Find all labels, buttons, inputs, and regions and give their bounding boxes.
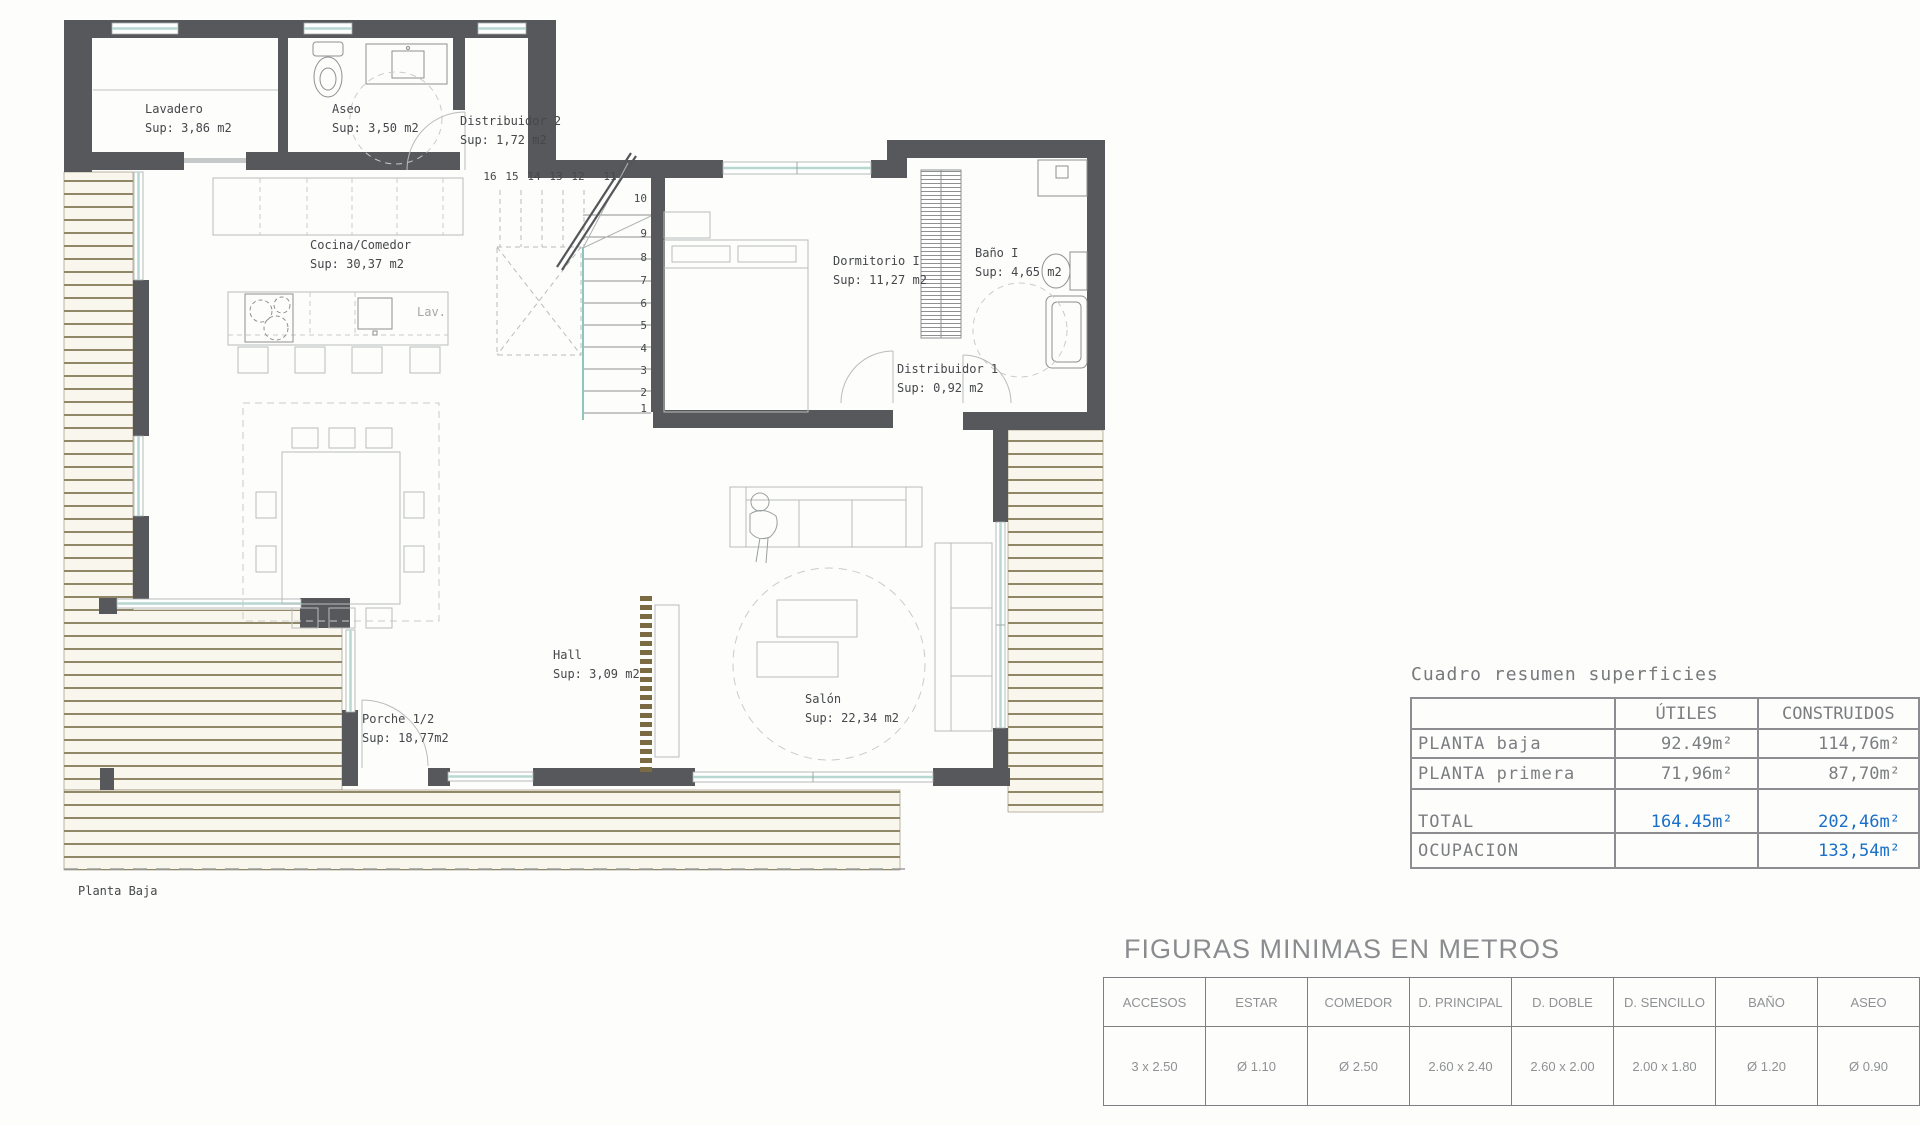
toilet-aseo bbox=[313, 42, 343, 97]
room-name: Porche 1/2 bbox=[362, 710, 449, 729]
stair-number: 9 bbox=[625, 227, 647, 240]
table-row: OCUPACION 133,54m² bbox=[1411, 833, 1919, 868]
vanity-aseo bbox=[366, 44, 447, 84]
summary-value-total: 202,46m² bbox=[1758, 789, 1919, 833]
figuras-value: Ø 0.90 bbox=[1818, 1027, 1920, 1106]
kitchen-island bbox=[228, 292, 448, 373]
summary-value: 92.49m² bbox=[1615, 729, 1758, 758]
wood-slat-strip bbox=[640, 596, 652, 772]
summary-row-label: PLANTA primera bbox=[1411, 758, 1615, 789]
summary-value: 114,76m² bbox=[1758, 729, 1919, 758]
room-label-hall: Hall Sup: 3,09 m2 bbox=[553, 646, 640, 684]
stair-number: 14 bbox=[525, 170, 543, 183]
room-label-distribuidor2: Distribuidor 2 Sup: 1,72 m2 bbox=[460, 112, 561, 150]
bed bbox=[664, 212, 808, 412]
stair-number: 1 bbox=[625, 402, 647, 415]
table-row: TOTAL 164.45m² 202,46m² bbox=[1411, 789, 1919, 833]
room-label-aseo: Aseo Sup: 3,50 m2 bbox=[332, 100, 419, 138]
room-name: Hall bbox=[553, 646, 640, 665]
figuras-col-header: BAÑO bbox=[1716, 978, 1818, 1027]
deck-post bbox=[100, 768, 114, 790]
room-label-lavadero: Lavadero Sup: 3,86 m2 bbox=[145, 100, 232, 138]
turning-circle-salon bbox=[733, 568, 925, 760]
person-figure bbox=[750, 493, 777, 563]
figuras-value: 2.60 x 2.40 bbox=[1410, 1027, 1512, 1106]
table-row: ACCESOS ESTAR COMEDOR D. PRINCIPAL D. DO… bbox=[1104, 978, 1920, 1027]
figuras-col-header: ACCESOS bbox=[1104, 978, 1206, 1027]
summary-table-title: Cuadro resumen superficies bbox=[1411, 664, 1719, 685]
sliding-door bbox=[184, 158, 246, 163]
stair-number: 12 bbox=[569, 170, 587, 183]
stair-number: 7 bbox=[625, 274, 647, 287]
room-name: Dormitorio I bbox=[833, 252, 927, 271]
room-name: Salón bbox=[805, 690, 899, 709]
stair-number: 16 bbox=[481, 170, 499, 183]
summary-col-header: CONSTRUIDOS bbox=[1758, 698, 1919, 729]
figuras-col-header: ESTAR bbox=[1206, 978, 1308, 1027]
stair-number: 4 bbox=[625, 342, 647, 355]
stair-number: 6 bbox=[625, 297, 647, 310]
room-label-cocina: Cocina/Comedor Sup: 30,37 m2 bbox=[310, 236, 411, 274]
room-label-distribuidor1: Distribuidor 1 Sup: 0,92 m2 bbox=[897, 360, 998, 398]
wardrobe bbox=[921, 170, 961, 338]
room-label-dormitorio1: Dormitorio I Sup: 11,27 m2 bbox=[833, 252, 927, 290]
stair-number: 3 bbox=[625, 364, 647, 377]
sink bbox=[358, 298, 392, 335]
room-area: Sup: 1,72 m2 bbox=[460, 131, 561, 150]
room-area: Sup: 3,50 m2 bbox=[332, 119, 419, 138]
figuras-value: 2.00 x 1.80 bbox=[1614, 1027, 1716, 1106]
table-row: PLANTA primera 71,96m² 87,70m² bbox=[1411, 758, 1919, 789]
figuras-col-header: ASEO bbox=[1818, 978, 1920, 1027]
coffee-table-2 bbox=[757, 642, 838, 677]
sink-label: Lav. bbox=[417, 305, 446, 319]
figuras-col-header: D. PRINCIPAL bbox=[1410, 978, 1512, 1027]
room-label-salon: Salón Sup: 22,34 m2 bbox=[805, 690, 899, 728]
summary-value-total: 164.45m² bbox=[1615, 789, 1758, 833]
side-unit bbox=[935, 543, 992, 731]
stair-number: 8 bbox=[625, 251, 647, 264]
room-area: Sup: 4,65 m2 bbox=[975, 263, 1062, 282]
toilet-bath-tank bbox=[1070, 252, 1087, 290]
figuras-value: 3 x 2.50 bbox=[1104, 1027, 1206, 1106]
figuras-value: Ø 1.20 bbox=[1716, 1027, 1818, 1106]
room-area: Sup: 11,27 m2 bbox=[833, 271, 927, 290]
room-name: Distribuidor 1 bbox=[897, 360, 998, 379]
room-area: Sup: 30,37 m2 bbox=[310, 255, 411, 274]
room-name: Lavadero bbox=[145, 100, 232, 119]
summary-table: ÚTILES CONSTRUIDOS PLANTA baja 92.49m² 1… bbox=[1410, 697, 1920, 869]
nightstand bbox=[664, 212, 710, 238]
figuras-col-header: D. SENCILLO bbox=[1614, 978, 1716, 1027]
stair-number: 11 bbox=[601, 170, 619, 183]
room-area: Sup: 3,86 m2 bbox=[145, 119, 232, 138]
room-area: Sup: 22,34 m2 bbox=[805, 709, 899, 728]
stair-number: 5 bbox=[625, 319, 647, 332]
mirror bbox=[1056, 166, 1068, 178]
figuras-col-header: D. DOBLE bbox=[1512, 978, 1614, 1027]
figuras-col-header: COMEDOR bbox=[1308, 978, 1410, 1027]
summary-row-label: OCUPACION bbox=[1411, 833, 1615, 868]
room-name: Cocina/Comedor bbox=[310, 236, 411, 255]
coffee-table-1 bbox=[777, 600, 857, 637]
figuras-value: 2.60 x 2.00 bbox=[1512, 1027, 1614, 1106]
sheet-title: Planta Baja bbox=[78, 884, 157, 898]
summary-value: 87,70m² bbox=[1758, 758, 1919, 789]
summary-row-label: PLANTA baja bbox=[1411, 729, 1615, 758]
figuras-table: ACCESOS ESTAR COMEDOR D. PRINCIPAL D. DO… bbox=[1103, 977, 1920, 1106]
stair-number: 2 bbox=[625, 386, 647, 399]
stair-number: 10 bbox=[625, 192, 647, 205]
figuras-table-title: FIGURAS MINIMAS EN METROS bbox=[1124, 934, 1560, 965]
room-name: Aseo bbox=[332, 100, 419, 119]
room-label-bano1: Baño I Sup: 4,65 m2 bbox=[975, 244, 1062, 282]
kitchen-counter bbox=[213, 178, 463, 235]
table-row: 3 x 2.50 Ø 1.10 Ø 2.50 2.60 x 2.40 2.60 … bbox=[1104, 1027, 1920, 1106]
floor-plan-drawing bbox=[0, 0, 1920, 1125]
island-stools bbox=[238, 347, 440, 373]
stair-number: 15 bbox=[503, 170, 521, 183]
room-area: Sup: 0,92 m2 bbox=[897, 379, 998, 398]
summary-value: 71,96m² bbox=[1615, 758, 1758, 789]
dining-table bbox=[243, 403, 439, 628]
room-name: Distribuidor 2 bbox=[460, 112, 561, 131]
summary-value bbox=[1615, 833, 1758, 868]
summary-col-header bbox=[1411, 698, 1615, 729]
room-area: Sup: 18,77m2 bbox=[362, 729, 449, 748]
room-name: Baño I bbox=[975, 244, 1062, 263]
stair-treads bbox=[583, 215, 651, 413]
summary-value-total: 133,54m² bbox=[1758, 833, 1919, 868]
floor-plan-sheet: Lavadero Sup: 3,86 m2 Aseo Sup: 3,50 m2 … bbox=[0, 0, 1920, 1125]
figuras-value: Ø 1.10 bbox=[1206, 1027, 1308, 1106]
room-area: Sup: 3,09 m2 bbox=[553, 665, 640, 684]
table-row: PLANTA baja 92.49m² 114,76m² bbox=[1411, 729, 1919, 758]
room-label-porche: Porche 1/2 Sup: 18,77m2 bbox=[362, 710, 449, 748]
hall-cabinet bbox=[655, 605, 679, 757]
summary-row-label: TOTAL bbox=[1411, 789, 1615, 833]
table-row: ÚTILES CONSTRUIDOS bbox=[1411, 698, 1919, 729]
figuras-value: Ø 2.50 bbox=[1308, 1027, 1410, 1106]
summary-col-header: ÚTILES bbox=[1615, 698, 1758, 729]
stair-number: 13 bbox=[547, 170, 565, 183]
